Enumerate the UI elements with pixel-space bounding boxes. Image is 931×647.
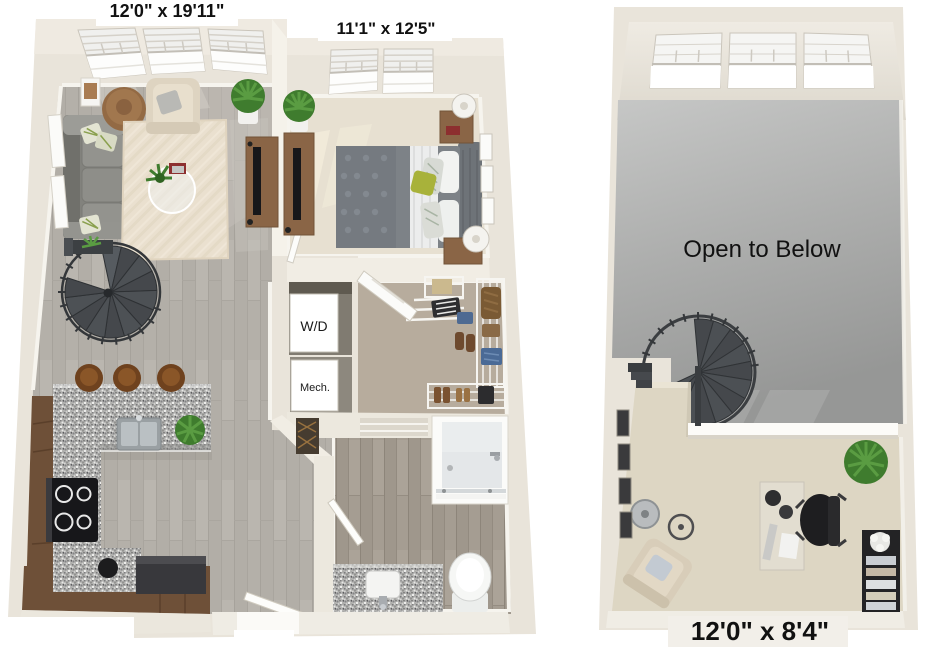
svg-text:12'0" x 8'4": 12'0" x 8'4" [691, 616, 829, 646]
svg-text:11'1" x 12'5": 11'1" x 12'5" [337, 19, 436, 38]
svg-text:Open to Below: Open to Below [683, 236, 841, 263]
svg-text:W/D: W/D [300, 318, 327, 334]
svg-text:12'0" x 19'11": 12'0" x 19'11" [110, 1, 225, 21]
svg-text:Mech.: Mech. [300, 382, 330, 394]
